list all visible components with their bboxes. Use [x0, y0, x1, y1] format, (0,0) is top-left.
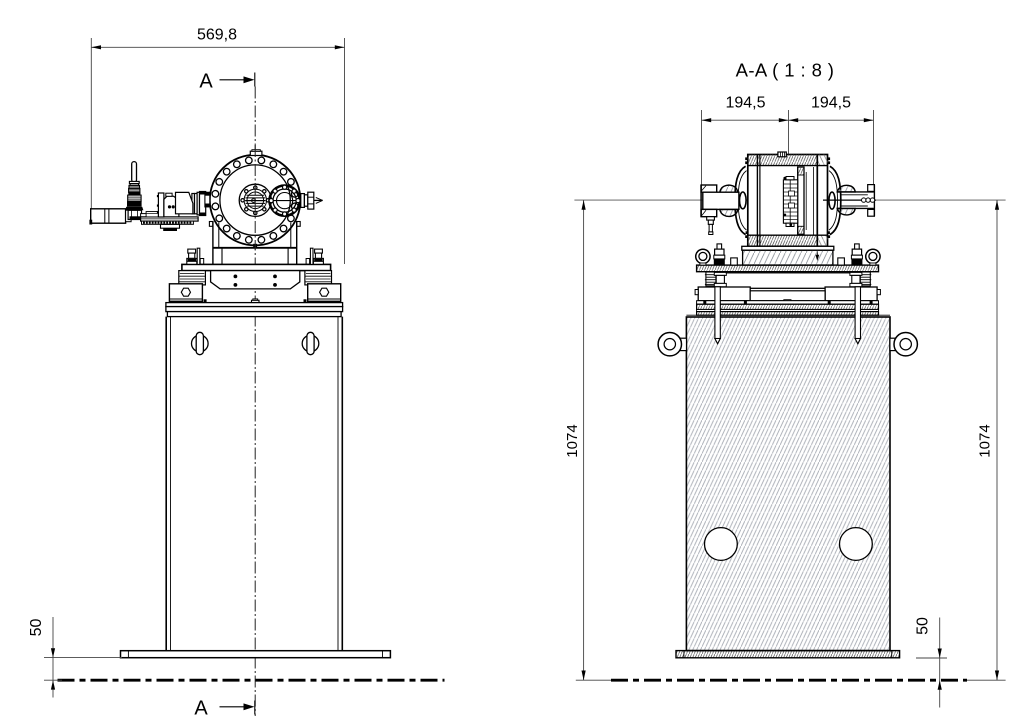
svg-text:569,8: 569,8	[197, 27, 237, 44]
svg-text:50: 50	[28, 619, 45, 637]
svg-text:1074: 1074	[977, 424, 994, 457]
svg-text:A-A ( 1 : 8 ): A-A ( 1 : 8 )	[736, 60, 835, 81]
svg-text:194,5: 194,5	[725, 95, 765, 112]
svg-text:1074: 1074	[564, 424, 581, 457]
svg-text:194,5: 194,5	[811, 95, 851, 112]
svg-text:A: A	[194, 698, 208, 720]
svg-text:50: 50	[915, 617, 932, 635]
svg-text:A: A	[199, 71, 213, 93]
